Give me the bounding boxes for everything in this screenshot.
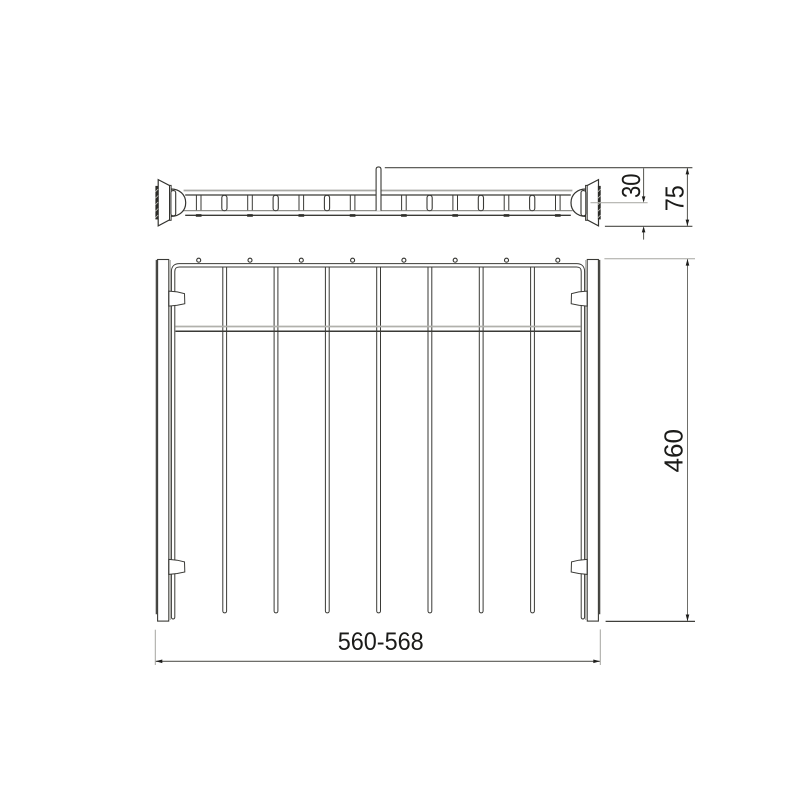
svg-text:75: 75 — [659, 185, 689, 211]
svg-text:460: 460 — [659, 429, 689, 473]
svg-text:30: 30 — [616, 174, 646, 199]
svg-text:560-568: 560-568 — [338, 628, 424, 656]
